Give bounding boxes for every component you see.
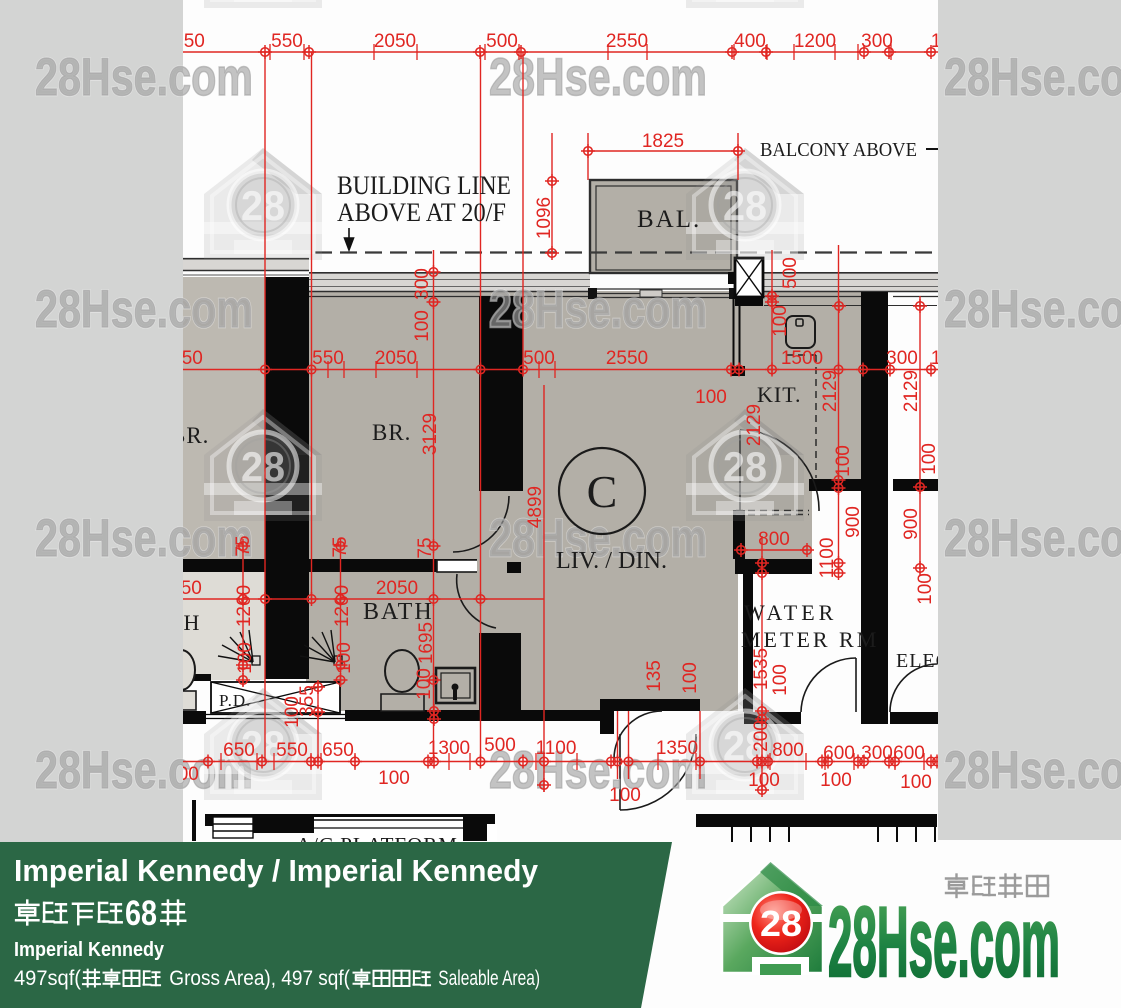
svg-text:2129: 2129 <box>901 370 922 412</box>
svg-text:500: 500 <box>486 31 518 52</box>
svg-text:900: 900 <box>843 506 864 538</box>
svg-text:BAL.: BAL. <box>637 206 701 233</box>
svg-text:LIV. / DIN.: LIV. / DIN. <box>556 548 667 574</box>
svg-text:100: 100 <box>833 445 854 477</box>
svg-text:28: 28 <box>723 182 767 229</box>
svg-text:100: 100 <box>378 768 410 789</box>
svg-text:Imperial Kennedy / Imperial Ke: Imperial Kennedy / Imperial Kennedy <box>14 853 539 888</box>
svg-text:KIT.: KIT. <box>757 382 802 407</box>
svg-text:100: 100 <box>770 305 791 337</box>
svg-text:400: 400 <box>734 31 766 52</box>
svg-text:1825: 1825 <box>642 131 684 152</box>
svg-text:300: 300 <box>861 31 893 52</box>
svg-text:1500: 1500 <box>781 348 823 369</box>
svg-text:WATER: WATER <box>744 600 837 625</box>
svg-text:Gross Area), 497 sqf(: Gross Area), 497 sqf( <box>164 967 350 990</box>
svg-text:500: 500 <box>523 348 555 369</box>
svg-text:BUILDING LINE: BUILDING LINE <box>337 171 511 200</box>
svg-text:100: 100 <box>680 662 701 694</box>
svg-text:1350: 1350 <box>656 738 698 759</box>
svg-text:28: 28 <box>241 182 285 229</box>
svg-text:28Hse.com: 28Hse.com <box>944 280 1121 339</box>
svg-text:100: 100 <box>334 642 355 674</box>
svg-text:100: 100 <box>919 443 940 475</box>
svg-text:2129: 2129 <box>820 370 841 412</box>
svg-text:600: 600 <box>823 743 855 764</box>
svg-text:2550: 2550 <box>606 348 648 369</box>
svg-text:100: 100 <box>695 387 727 408</box>
svg-text:28Hse.com: 28Hse.com <box>489 280 707 339</box>
svg-text:650: 650 <box>223 740 255 761</box>
svg-text:28Hse.com: 28Hse.com <box>944 509 1121 568</box>
svg-text:28Hse.com: 28Hse.com <box>944 741 1121 800</box>
svg-text:600: 600 <box>893 743 925 764</box>
svg-text:1695: 1695 <box>416 622 437 664</box>
svg-text:550: 550 <box>271 31 303 52</box>
svg-text:550: 550 <box>276 740 308 761</box>
svg-text:1100: 1100 <box>817 538 838 579</box>
svg-text:100: 100 <box>609 785 641 806</box>
svg-text:28: 28 <box>241 443 285 490</box>
svg-text:100: 100 <box>820 770 852 791</box>
svg-text:100: 100 <box>282 696 303 728</box>
svg-text:75: 75 <box>233 535 254 556</box>
svg-text:4899: 4899 <box>525 486 546 528</box>
svg-text:650: 650 <box>322 740 354 761</box>
svg-text:2550: 2550 <box>606 31 648 52</box>
svg-text:1260: 1260 <box>332 585 353 627</box>
svg-text:Saleable Area): Saleable Area) <box>434 967 540 990</box>
svg-text:H: H <box>184 610 200 635</box>
svg-text:METER RM: METER RM <box>741 627 879 652</box>
svg-text:1300: 1300 <box>428 738 470 759</box>
svg-text:2050: 2050 <box>374 31 416 52</box>
svg-text:500: 500 <box>484 735 516 756</box>
svg-text:75: 75 <box>415 537 436 558</box>
svg-text:C: C <box>587 466 618 517</box>
svg-text:100: 100 <box>235 642 256 674</box>
svg-text:550: 550 <box>312 348 344 369</box>
svg-text:2129: 2129 <box>744 404 765 446</box>
svg-text:28Hse.com: 28Hse.com <box>828 886 1060 997</box>
svg-text:BATH: BATH <box>363 599 434 625</box>
svg-text:300: 300 <box>412 268 433 300</box>
svg-text:28: 28 <box>760 903 802 944</box>
svg-text:28Hse.com: 28Hse.com <box>944 48 1121 107</box>
svg-text:ABOVE AT 20/F: ABOVE AT 20/F <box>337 198 506 227</box>
svg-text:1535: 1535 <box>751 648 772 690</box>
svg-text:68: 68 <box>125 894 157 933</box>
svg-text:300: 300 <box>886 348 918 369</box>
svg-text:100: 100 <box>770 664 791 696</box>
svg-text:Imperial Kennedy: Imperial Kennedy <box>14 939 165 961</box>
svg-text:300: 300 <box>861 743 893 764</box>
svg-text:1200: 1200 <box>794 31 836 52</box>
svg-text:800: 800 <box>758 529 790 550</box>
svg-text:100: 100 <box>412 310 433 342</box>
svg-text:100: 100 <box>748 770 780 791</box>
svg-text:135: 135 <box>644 660 665 692</box>
svg-text:800: 800 <box>772 740 804 761</box>
svg-text:28: 28 <box>723 443 767 490</box>
svg-text:28Hse.com: 28Hse.com <box>35 280 253 339</box>
svg-text:500: 500 <box>780 257 801 289</box>
svg-text:2050: 2050 <box>376 578 418 599</box>
svg-text:2050: 2050 <box>375 348 417 369</box>
svg-text:100: 100 <box>414 668 435 700</box>
svg-text:497sqf(: 497sqf( <box>14 967 81 990</box>
svg-text:75: 75 <box>330 536 351 557</box>
svg-text:BALCONY ABOVE: BALCONY ABOVE <box>760 139 917 161</box>
svg-text:200: 200 <box>751 720 772 752</box>
svg-text:100: 100 <box>900 772 932 793</box>
svg-text:100: 100 <box>915 573 936 605</box>
svg-text:1100: 1100 <box>536 738 577 759</box>
svg-text:1260: 1260 <box>234 585 255 627</box>
svg-text:1096: 1096 <box>534 197 555 239</box>
svg-text:BR.: BR. <box>372 420 411 445</box>
svg-text:3129: 3129 <box>420 413 441 455</box>
svg-text:900: 900 <box>901 508 922 540</box>
svg-text:28Hse.com: 28Hse.com <box>35 48 253 107</box>
